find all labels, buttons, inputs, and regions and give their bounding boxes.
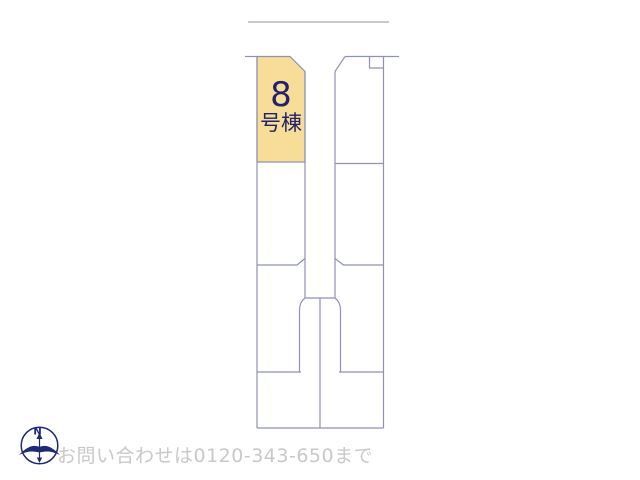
- compass-tail-arrow: [37, 458, 42, 464]
- driveway-flare-right: [335, 298, 341, 310]
- lot-right-corner-bevel: [335, 57, 345, 72]
- plot-map: [0, 0, 640, 480]
- plot-map-page: 8 号棟 N お問い合わせは0120-343-650まで: [0, 0, 640, 480]
- lot-8-suffix: 号棟: [257, 111, 305, 136]
- lot-8-label: 8 号棟: [257, 79, 305, 136]
- lot-divider-right-2: [335, 259, 384, 266]
- lot-right-notch: [370, 57, 384, 69]
- contact-text: お問い合わせは0120-343-650まで: [57, 446, 373, 466]
- lot-8-number: 8: [257, 79, 305, 111]
- driveway-flare-left: [300, 298, 306, 310]
- lot-divider-left-2: [257, 259, 305, 266]
